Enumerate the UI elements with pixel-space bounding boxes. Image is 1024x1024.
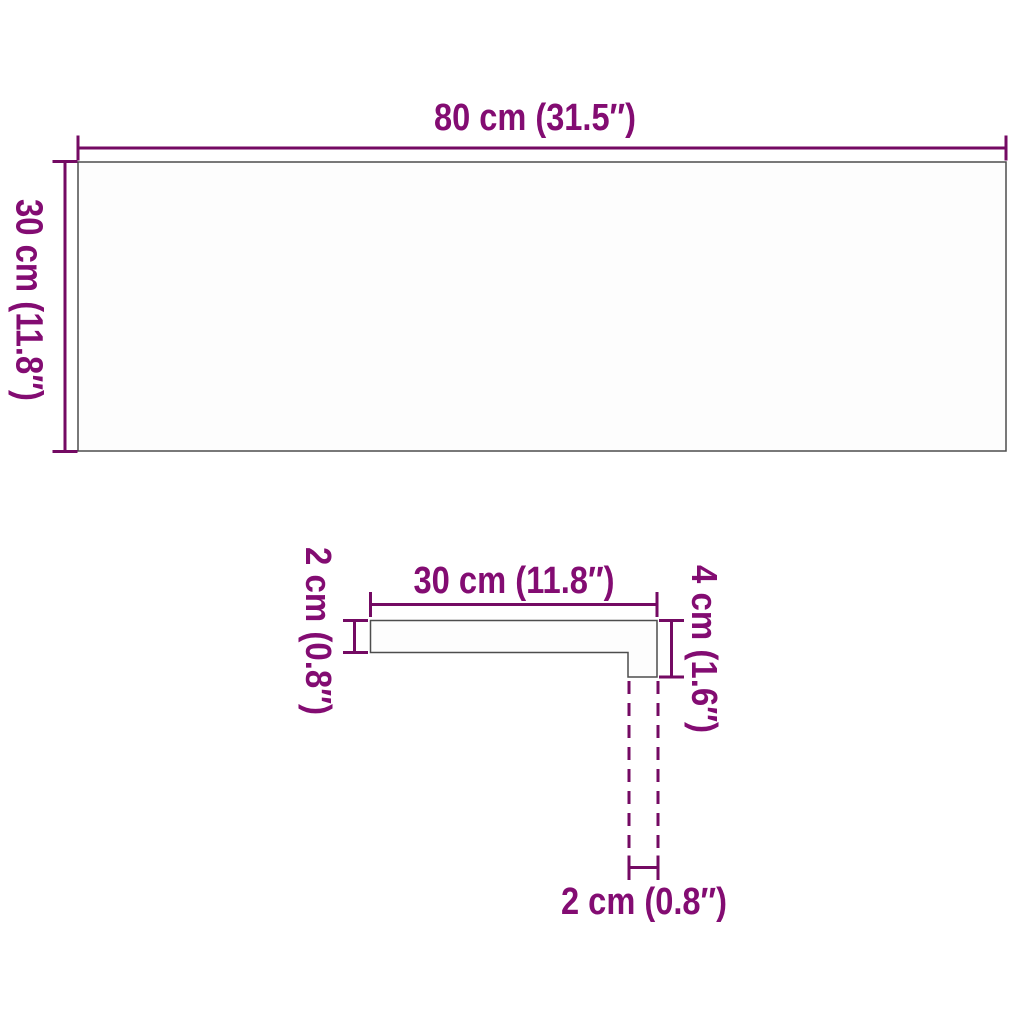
svg-text:80 cm (31.5″): 80 cm (31.5″) xyxy=(434,97,636,139)
svg-text:2 cm (0.8″): 2 cm (0.8″) xyxy=(561,881,727,923)
svg-text:4 cm (1.6″): 4 cm (1.6″) xyxy=(684,565,725,733)
svg-text:30 cm (11.8″): 30 cm (11.8″) xyxy=(414,560,615,602)
svg-text:30 cm (11.8″): 30 cm (11.8″) xyxy=(8,199,50,401)
svg-text:2 cm (0.8″): 2 cm (0.8″) xyxy=(298,547,339,715)
